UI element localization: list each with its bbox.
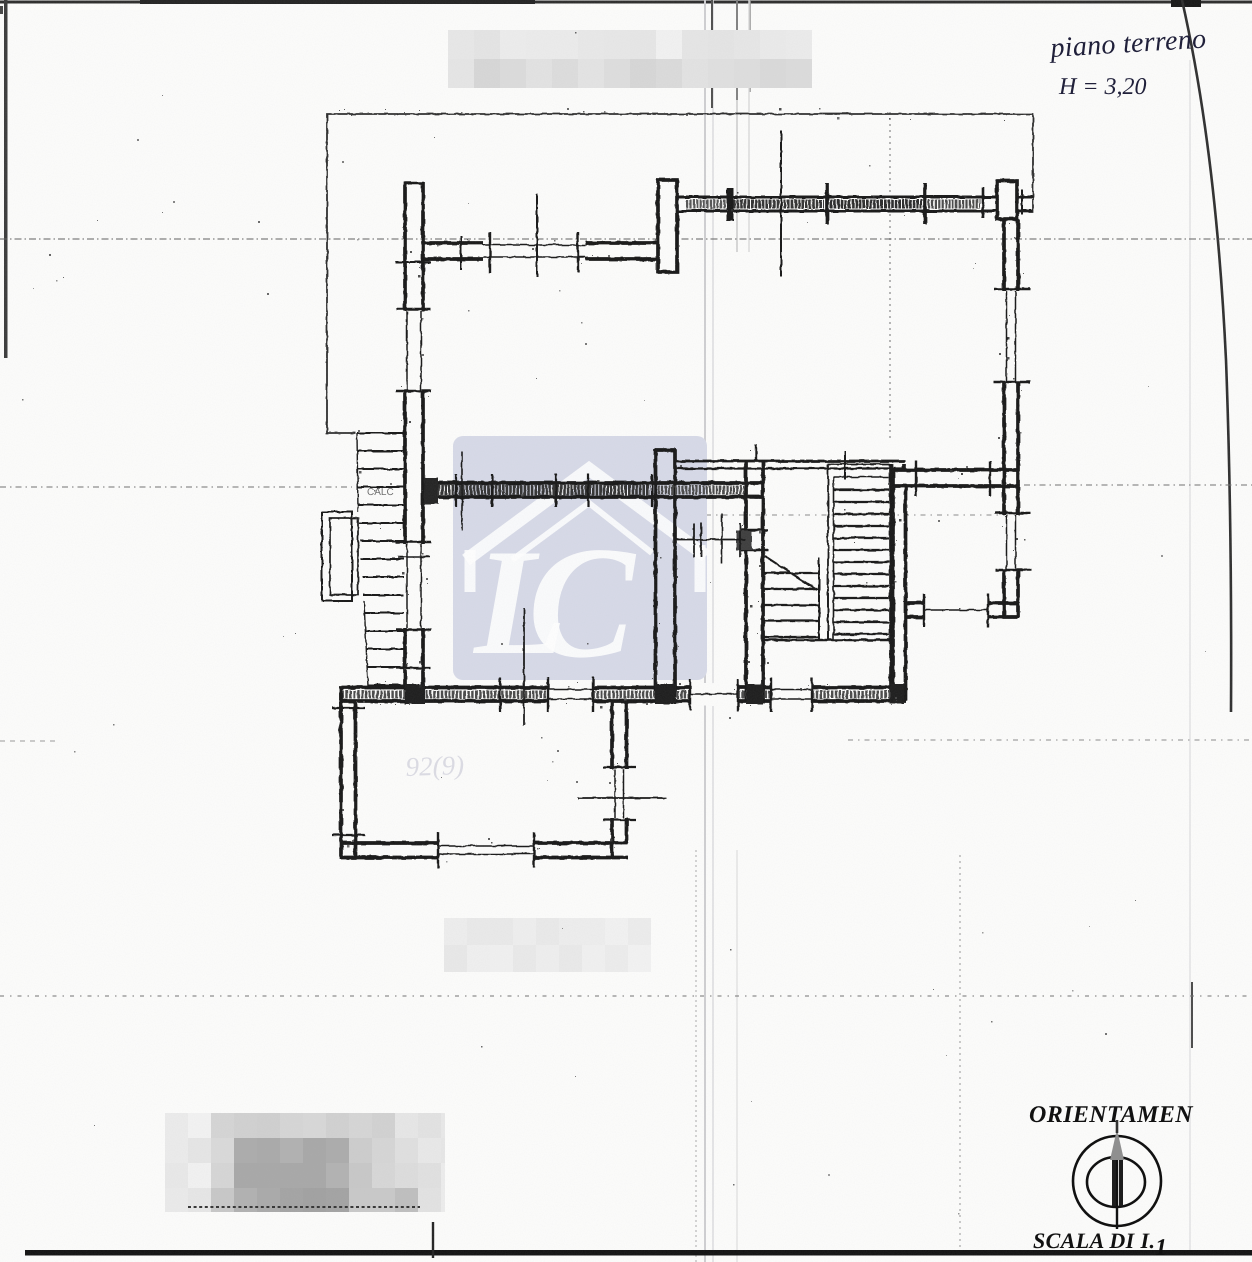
svg-text:92(9): 92(9) (405, 750, 465, 782)
svg-text:CALC: CALC (367, 487, 394, 498)
svg-text:ORIENTAMEN: ORIENTAMEN (1029, 1102, 1194, 1128)
svg-text:SCALA DI I.: SCALA DI I. (1033, 1228, 1155, 1253)
svg-text:1: 1 (1155, 1235, 1167, 1261)
svg-text:H = 3,20: H = 3,20 (1058, 74, 1147, 100)
